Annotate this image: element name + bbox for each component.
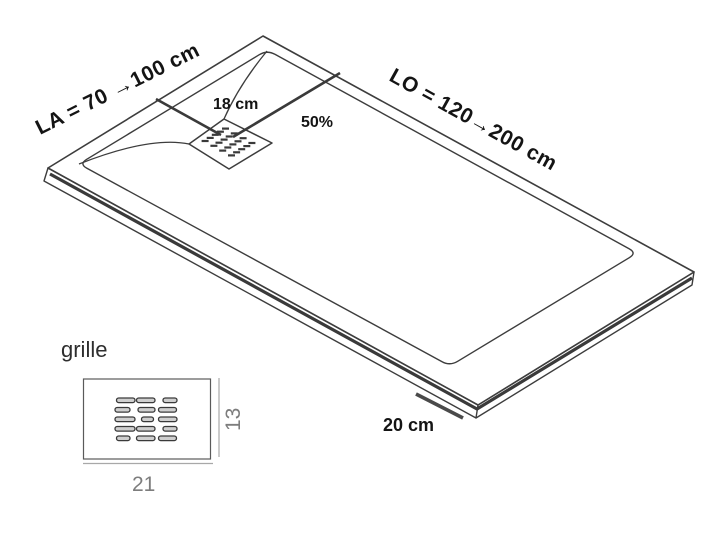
grille-slot — [115, 427, 135, 432]
grille-slot — [163, 398, 177, 403]
label-18cm: 18 cm — [213, 96, 258, 113]
grille-slot — [115, 408, 130, 413]
grille-slot — [137, 436, 156, 441]
grille-height-value: 13 — [222, 408, 245, 431]
grille-width-value: 21 — [132, 473, 155, 496]
grille-slot — [138, 408, 155, 413]
grille-slot — [159, 408, 177, 413]
grille-label: grille — [61, 337, 107, 362]
grille-slot — [142, 417, 154, 422]
diagram-svg: LA = 70 →100 cm LO = 120→200 cm 18 cm 50… — [0, 0, 720, 540]
grille-slot — [137, 427, 156, 432]
grille-slot — [137, 398, 156, 403]
label-20cm: 20 cm — [383, 415, 434, 435]
grille-slot — [117, 398, 136, 403]
grille-slot — [163, 427, 177, 432]
grille-slot — [159, 436, 177, 441]
grille-slot — [159, 417, 178, 422]
label-50pct: 50% — [301, 114, 333, 131]
grille-slot — [115, 417, 135, 422]
grille-slot — [117, 436, 131, 441]
shower-tray-dimension-diagram: LA = 70 →100 cm LO = 120→200 cm 18 cm 50… — [0, 0, 720, 540]
grille-detail: grille 13 21 — [61, 337, 245, 496]
